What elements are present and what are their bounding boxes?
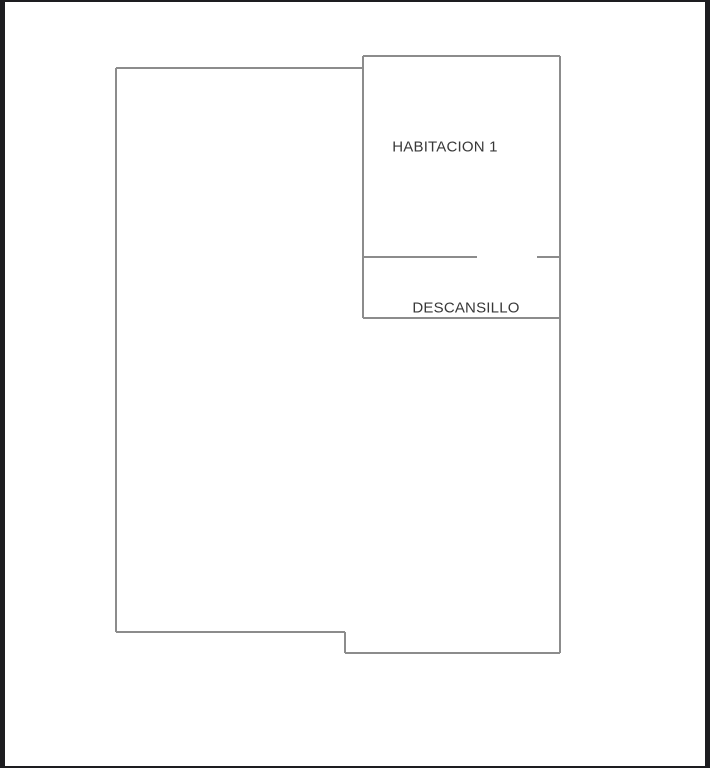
floor-plan-canvas: HABITACION 1DESCANSILLO xyxy=(5,2,705,766)
screenshot-frame: HABITACION 1DESCANSILLO xyxy=(0,0,710,768)
letterbox-right-bar xyxy=(705,0,710,768)
room-label-descansillo: DESCANSILLO xyxy=(412,300,519,317)
letterbox-left-bar xyxy=(0,0,5,768)
letterbox-top-bar xyxy=(0,0,710,2)
floor-plan-drawing: HABITACION 1DESCANSILLO xyxy=(0,0,710,768)
room-label-habitacion-1: HABITACION 1 xyxy=(392,139,497,156)
